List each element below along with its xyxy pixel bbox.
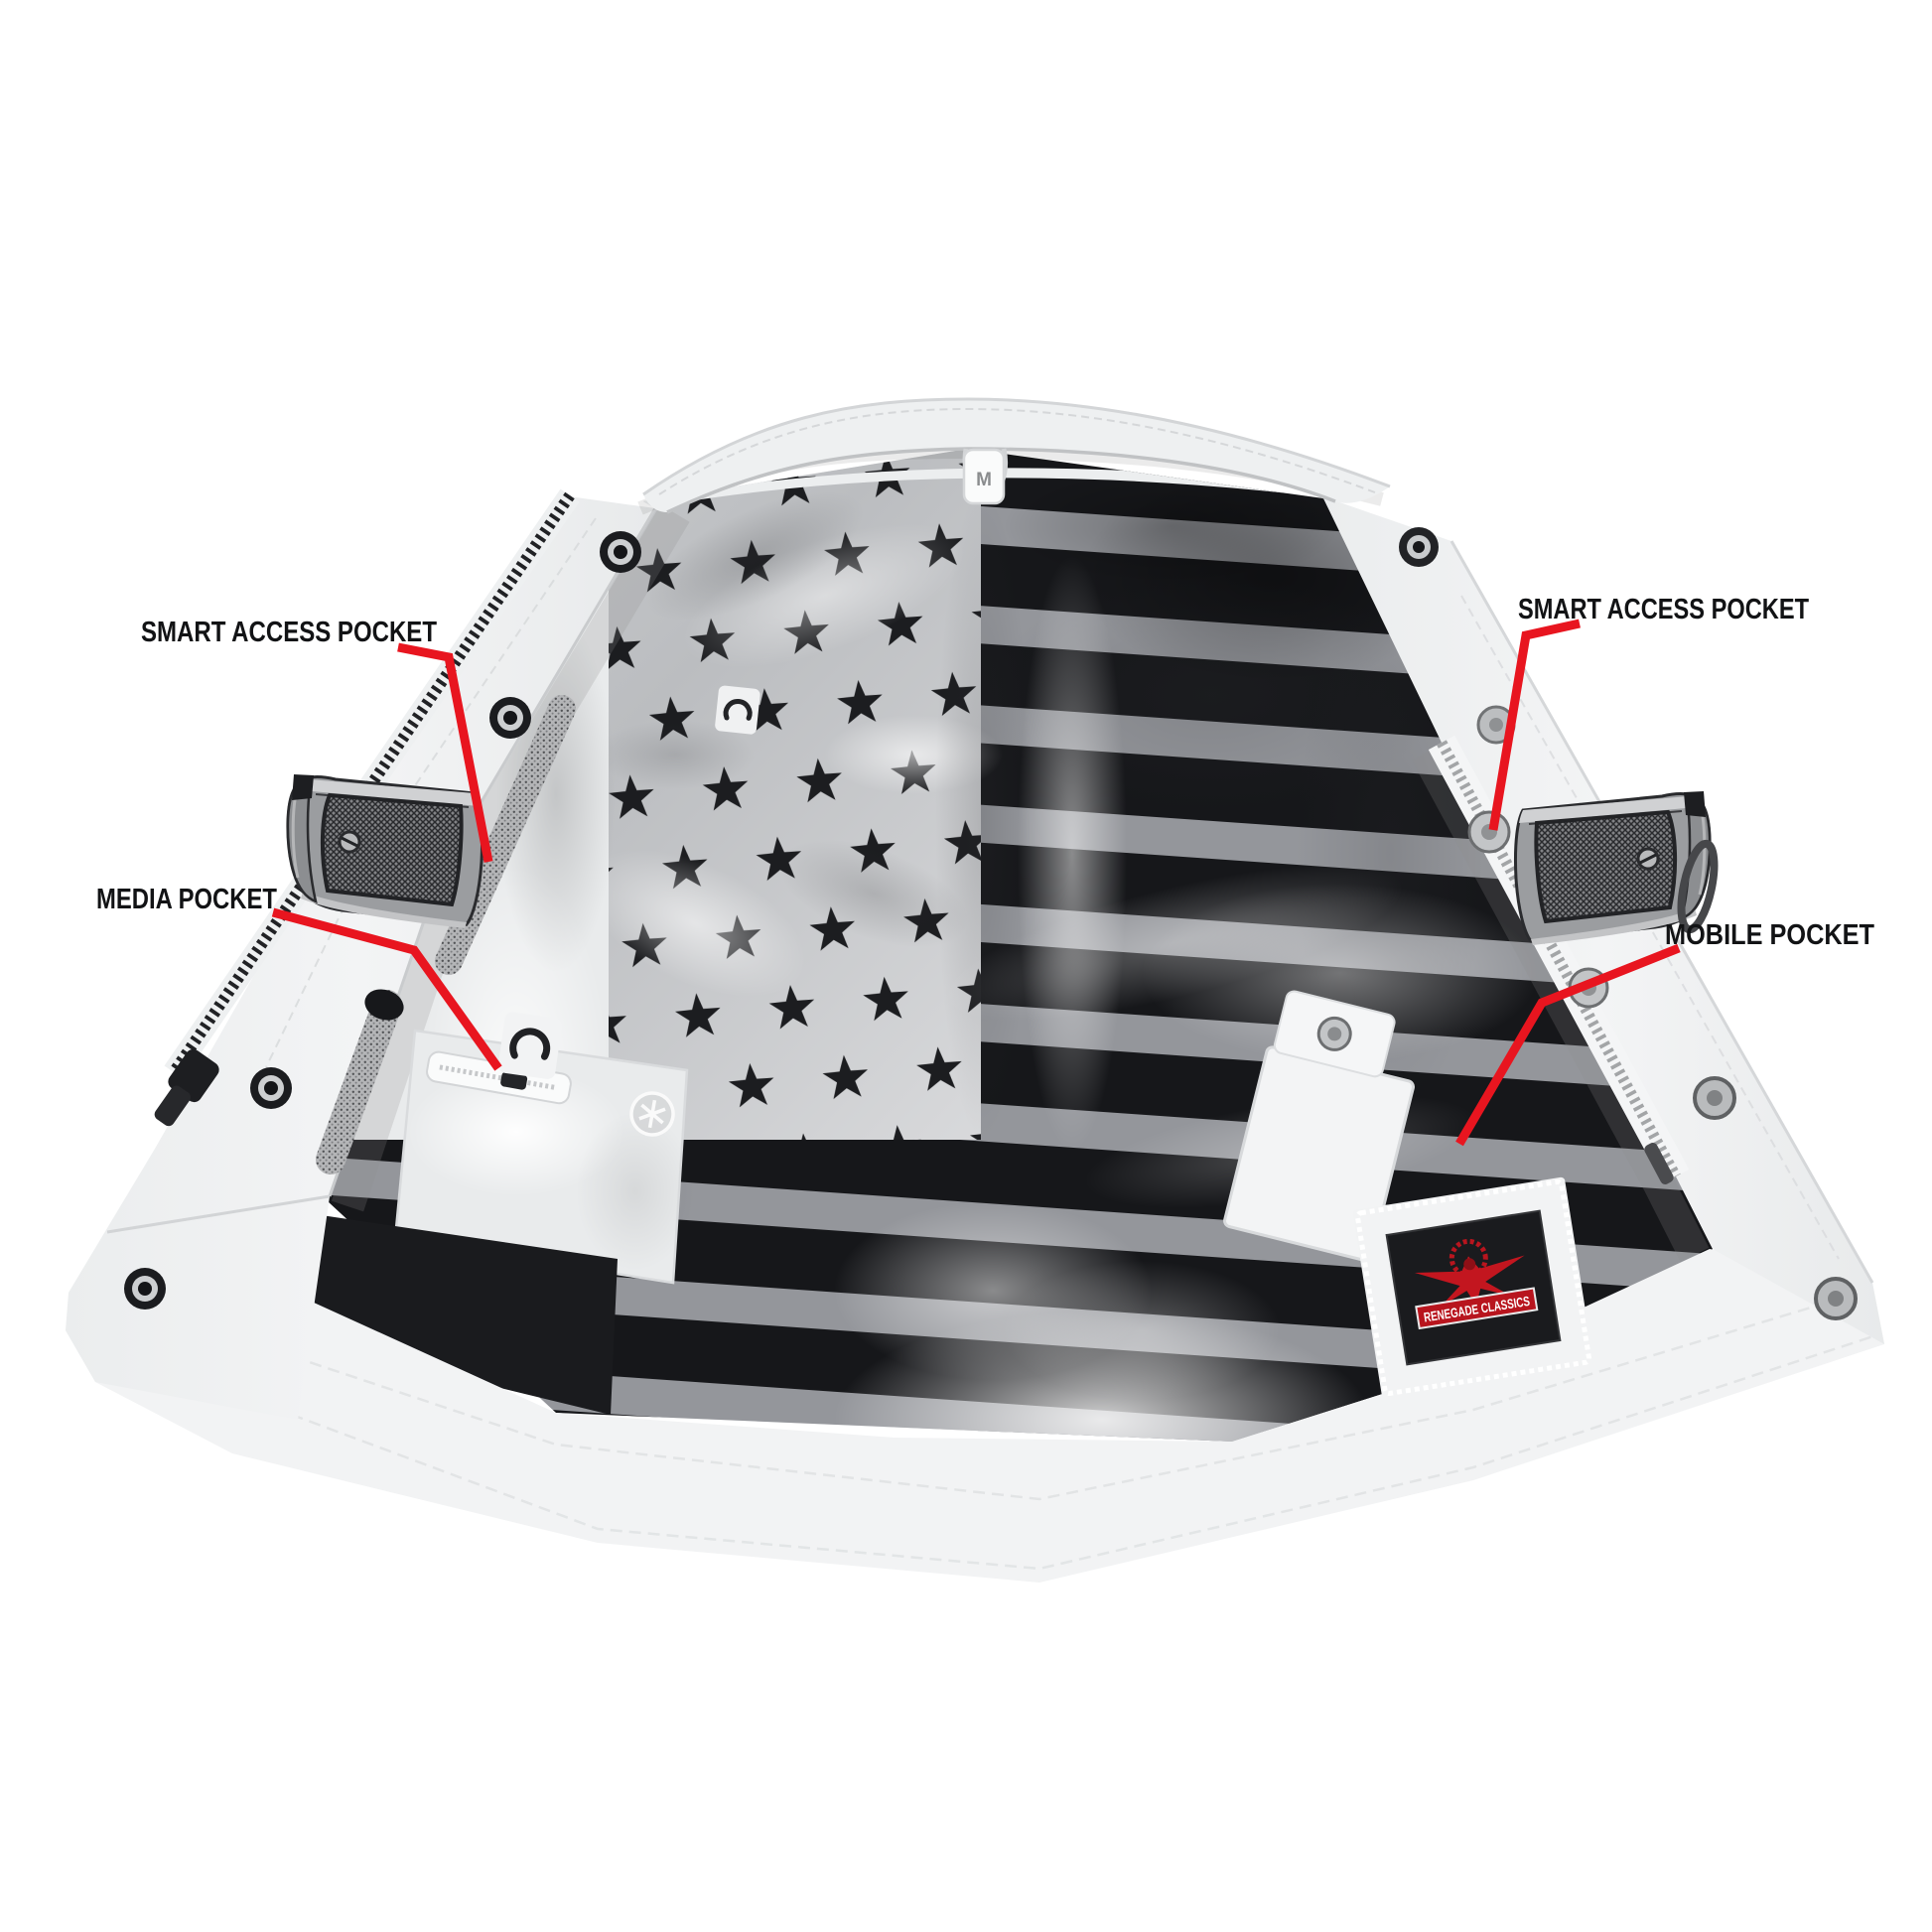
svg-text:M: M: [976, 470, 992, 490]
svg-text:MEDIA POCKET: MEDIA POCKET: [96, 884, 277, 915]
svg-text:SMART ACCESS POCKET: SMART ACCESS POCKET: [1518, 594, 1809, 625]
svg-text:SMART ACCESS POCKET: SMART ACCESS POCKET: [141, 617, 437, 648]
svg-text:MOBILE POCKET: MOBILE POCKET: [1665, 919, 1874, 951]
